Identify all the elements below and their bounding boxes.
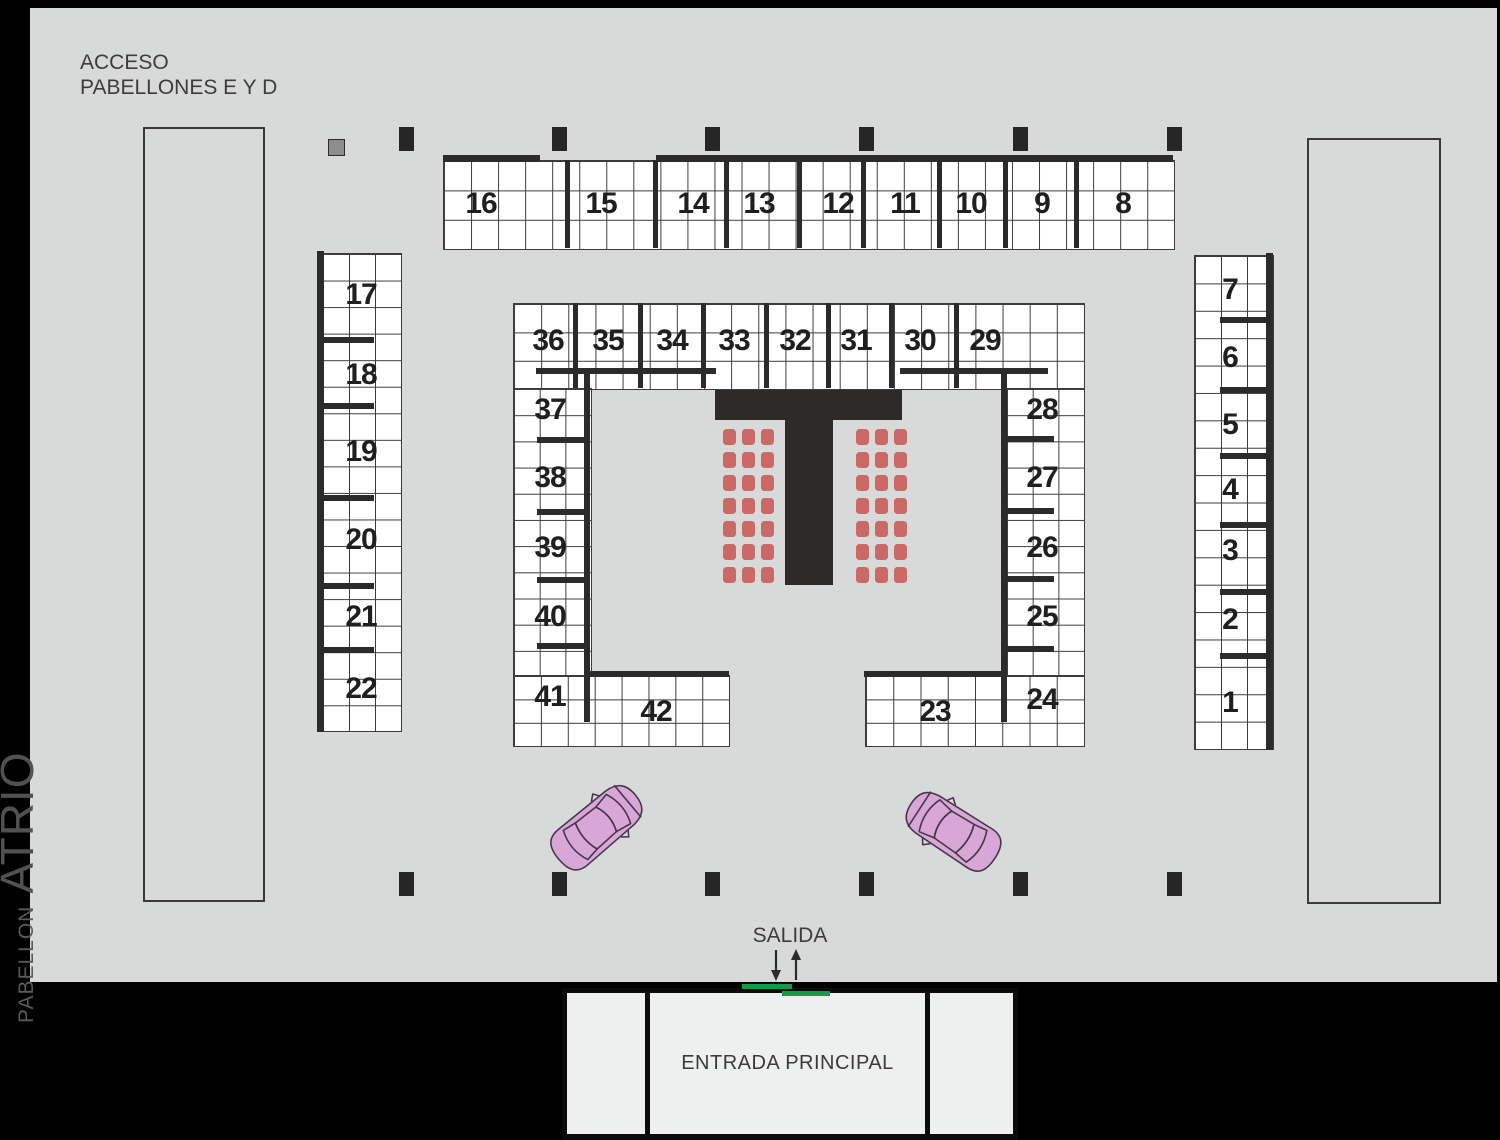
booth-label: 20 (345, 523, 376, 557)
service-box (328, 139, 345, 156)
booth-label: 10 (955, 187, 986, 221)
wall-segment (1220, 453, 1272, 459)
booth-grid-top-row (443, 160, 1175, 250)
wall-segment (1220, 522, 1272, 528)
wall-segment (954, 303, 959, 388)
booth-label: 29 (969, 324, 1000, 358)
door-marker (782, 991, 830, 996)
booth-label: 24 (1026, 683, 1057, 717)
stage-structure-stem (785, 420, 833, 585)
chair (761, 475, 774, 491)
booth-label: 2 (1222, 603, 1238, 637)
wall-segment (322, 495, 374, 501)
booth-label: 18 (345, 358, 376, 392)
wall-segment (1266, 253, 1273, 750)
column-pillar (399, 127, 414, 151)
wall-segment (861, 160, 866, 248)
floor-plan: ACCESO PABELLONES E Y D PABELLON ATRIO (0, 0, 1500, 1140)
chair (894, 521, 907, 537)
wall-segment (1001, 436, 1054, 442)
chair (742, 452, 755, 468)
booth-label: 7 (1222, 273, 1238, 307)
chair (761, 567, 774, 583)
wall-segment (656, 155, 1173, 162)
booth-label: 15 (585, 187, 616, 221)
booth-label: 41 (534, 680, 565, 714)
wall-segment (322, 337, 374, 343)
chair (875, 521, 888, 537)
chair (761, 452, 774, 468)
column-pillar (552, 127, 567, 151)
chair (875, 567, 888, 583)
access-label-line1: ACCESO (80, 50, 277, 75)
booth-label: 42 (640, 695, 671, 729)
booth-label: 36 (532, 324, 563, 358)
booth-label: 21 (345, 600, 376, 634)
chair (742, 567, 755, 583)
wall-segment (1074, 160, 1079, 248)
wall-segment (1001, 576, 1054, 582)
booth-label: 31 (840, 324, 871, 358)
column-pillar (1013, 127, 1028, 151)
wall-segment (826, 303, 831, 388)
side-room-left (143, 127, 265, 902)
booth-label: 22 (345, 672, 376, 706)
chair (894, 452, 907, 468)
car-icon (899, 779, 1007, 883)
wall-segment (322, 647, 374, 653)
chair (875, 429, 888, 445)
booth-label: 34 (656, 324, 687, 358)
wall-segment (864, 671, 1005, 677)
booth-label: 35 (592, 324, 623, 358)
chair (894, 567, 907, 583)
column-pillar (1013, 872, 1028, 896)
wall-segment (1001, 368, 1007, 722)
chair (723, 521, 736, 537)
exit-label: SALIDA (753, 924, 828, 948)
chair (894, 498, 907, 514)
booth-label: 38 (534, 461, 565, 495)
booth-label: 26 (1026, 531, 1057, 565)
chair (856, 498, 869, 514)
booth-label: 3 (1222, 534, 1238, 568)
entrance-room-main: ENTRADA PRINCIPAL (650, 993, 925, 1134)
wall-segment (537, 509, 590, 515)
wall-segment (1220, 589, 1272, 595)
entrance-label: ENTRADA PRINCIPAL (681, 1052, 894, 1075)
chair (856, 429, 869, 445)
chair (723, 544, 736, 560)
column-pillar (399, 872, 414, 896)
chair (875, 498, 888, 514)
column-pillar (859, 872, 874, 896)
side-room-right (1307, 138, 1441, 904)
wall-segment (584, 368, 590, 722)
wall-segment (537, 643, 590, 649)
booth-label: 40 (534, 600, 565, 634)
wall-segment (889, 303, 894, 388)
chair (723, 475, 736, 491)
wall-segment (701, 303, 706, 388)
wall-segment (443, 155, 540, 162)
chair (723, 567, 736, 583)
access-label-line2: PABELLONES E Y D (80, 75, 277, 100)
chair (894, 544, 907, 560)
booth-label: 9 (1034, 187, 1050, 221)
hall-name: ATRIO (0, 752, 44, 894)
chair (761, 498, 774, 514)
door-marker (742, 984, 792, 989)
booth-label: 1 (1222, 686, 1238, 720)
wall-segment (322, 583, 374, 589)
wall-segment (900, 368, 1048, 374)
column-pillar (705, 872, 720, 896)
booth-label: 32 (779, 324, 810, 358)
wall-segment (588, 671, 729, 677)
wall-segment (1220, 387, 1272, 393)
wall-segment (537, 577, 590, 583)
chair (742, 429, 755, 445)
booth-label: 5 (1222, 408, 1238, 442)
column-pillar (552, 872, 567, 896)
chair (761, 429, 774, 445)
wall-segment (322, 403, 374, 409)
wall-segment (317, 251, 324, 732)
booth-label: 19 (345, 435, 376, 469)
column-pillar (1167, 872, 1182, 896)
booth-label: 30 (904, 324, 935, 358)
wall-segment (1220, 317, 1272, 323)
chair (875, 544, 888, 560)
chair (723, 452, 736, 468)
booth-label: 25 (1026, 600, 1057, 634)
booth-label: 39 (534, 531, 565, 565)
chair (894, 429, 907, 445)
chair (723, 498, 736, 514)
booth-label: 4 (1222, 473, 1238, 507)
wall-segment (1001, 646, 1054, 652)
wall-segment (1220, 653, 1272, 659)
chair (856, 452, 869, 468)
booth-label: 33 (718, 324, 749, 358)
booth-label: 16 (465, 187, 496, 221)
chair (742, 544, 755, 560)
entrance-room-left (567, 993, 645, 1134)
chair (761, 521, 774, 537)
booth-label: 37 (534, 393, 565, 427)
booth-label: 14 (677, 187, 708, 221)
chair (742, 498, 755, 514)
booth-label: 6 (1222, 341, 1238, 375)
wall-segment (764, 303, 769, 388)
booth-label: 8 (1115, 187, 1131, 221)
booth-label: 23 (919, 695, 950, 729)
chair (875, 452, 888, 468)
chair (856, 521, 869, 537)
chair (856, 567, 869, 583)
wall-segment (536, 368, 716, 374)
wall-segment (937, 160, 942, 248)
chair (856, 475, 869, 491)
chair (875, 475, 888, 491)
chair (723, 429, 736, 445)
wall-segment (653, 160, 658, 248)
column-pillar (859, 127, 874, 151)
exit-arrows-icon (762, 948, 806, 987)
chair (761, 544, 774, 560)
pavilion-title: PABELLON ATRIO (0, 673, 36, 1023)
car-icon (543, 775, 651, 879)
entrance-building: ENTRADA PRINCIPAL (562, 988, 1018, 1140)
column-pillar (1167, 127, 1182, 151)
wall-segment (724, 160, 729, 248)
wall-segment (1003, 160, 1008, 248)
booth-grid-left-column (322, 253, 402, 732)
column-pillar (705, 127, 720, 151)
wall-segment (797, 160, 802, 248)
wall-segment (565, 160, 570, 248)
booth-label: 12 (822, 187, 853, 221)
entrance-room-right (930, 993, 1013, 1134)
booth-label: 17 (345, 278, 376, 312)
chair (894, 475, 907, 491)
booth-label: 27 (1026, 461, 1057, 495)
chair (742, 521, 755, 537)
access-label: ACCESO PABELLONES E Y D (80, 50, 277, 100)
pavilion-word: PABELLON (15, 906, 39, 1023)
chair (742, 475, 755, 491)
wall-segment (537, 437, 590, 443)
booth-label: 28 (1026, 393, 1057, 427)
wall-segment (1001, 508, 1054, 514)
booth-label: 13 (743, 187, 774, 221)
chair (856, 544, 869, 560)
wall-segment (638, 303, 643, 388)
booth-label: 11 (890, 187, 920, 221)
wall-segment (573, 303, 578, 388)
